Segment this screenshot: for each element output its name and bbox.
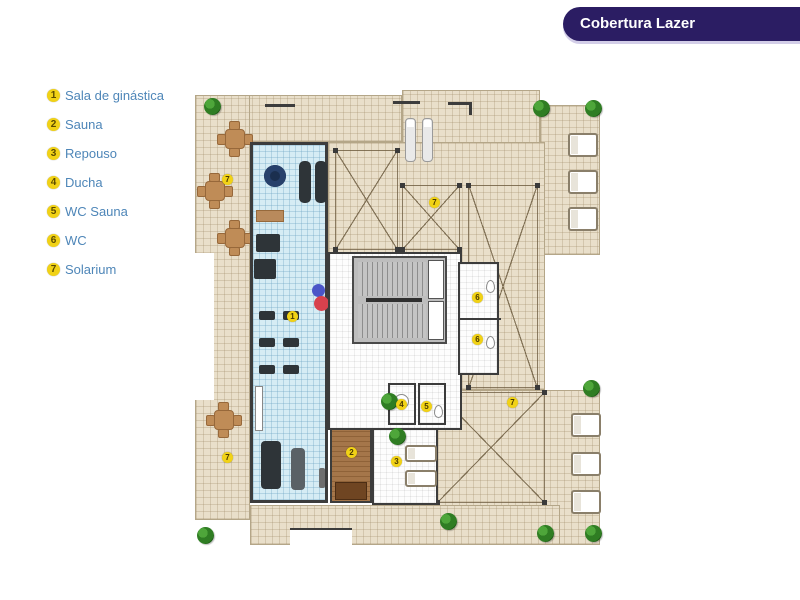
legend-item-label: Solarium — [65, 262, 116, 277]
slide-cobertura-lazer: Cobertura Lazer 1 Sala de ginástica 2 Sa… — [0, 0, 800, 600]
room-marker: 1 — [287, 311, 298, 322]
legend-item-label: WC Sauna — [65, 204, 128, 219]
legend-item-label: Sauna — [65, 117, 103, 132]
legend-number-badge: 5 — [47, 205, 60, 218]
room-markers: 12345667777 — [195, 85, 665, 553]
legend-item: 3 Repouso — [47, 146, 164, 160]
legend-item: 7 Solarium — [47, 262, 164, 276]
legend-number-badge: 2 — [47, 118, 60, 131]
room-marker: 5 — [421, 401, 432, 412]
legend-item: 6 WC — [47, 233, 164, 247]
legend-item-label: WC — [65, 233, 87, 248]
legend-number-badge: 6 — [47, 234, 60, 247]
room-marker: 2 — [346, 447, 357, 458]
room-marker: 7 — [507, 397, 518, 408]
legend-item: 4 Ducha — [47, 175, 164, 189]
legend-number-badge: 4 — [47, 176, 60, 189]
legend-item-label: Sala de ginástica — [65, 88, 164, 103]
room-marker: 6 — [472, 292, 483, 303]
legend-item-label: Ducha — [65, 175, 103, 190]
legend-number-badge: 7 — [47, 263, 60, 276]
legend-number-badge: 1 — [47, 89, 60, 102]
room-marker: 3 — [391, 456, 402, 467]
room-marker: 7 — [222, 174, 233, 185]
legend-item: 2 Sauna — [47, 117, 164, 131]
legend-number-badge: 3 — [47, 147, 60, 160]
legend-item: 1 Sala de ginástica — [47, 88, 164, 102]
legend-item: 5 WC Sauna — [47, 204, 164, 218]
legend-item-label: Repouso — [65, 146, 117, 161]
floor-plan: 12345667777 — [195, 85, 665, 553]
page-title: Cobertura Lazer — [580, 15, 695, 32]
room-marker: 4 — [396, 399, 407, 410]
room-marker: 7 — [429, 197, 440, 208]
room-marker: 6 — [472, 334, 483, 345]
legend: 1 Sala de ginástica 2 Sauna 3 Repouso 4 … — [47, 88, 164, 276]
title-banner: Cobertura Lazer — [563, 7, 800, 41]
room-marker: 7 — [222, 452, 233, 463]
